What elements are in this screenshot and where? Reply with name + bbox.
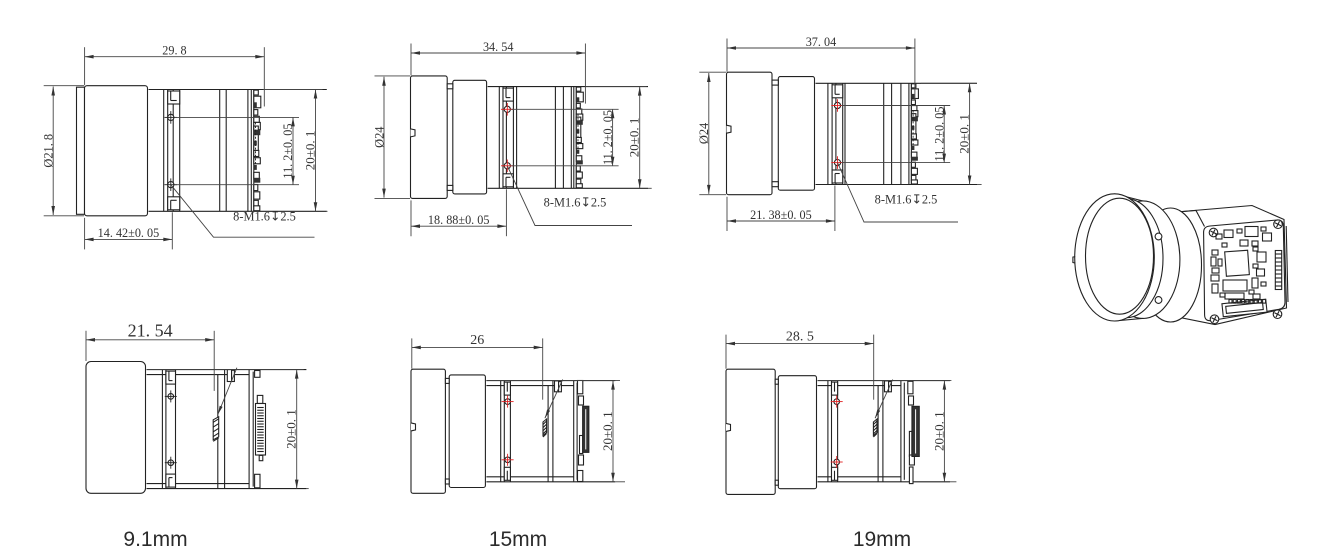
svg-text:15mm: 15mm <box>489 528 547 550</box>
svg-text:29. 8: 29. 8 <box>162 44 186 58</box>
svg-text:11. 2±0. 05: 11. 2±0. 05 <box>601 110 615 165</box>
svg-text:8-M1.6↧2.5: 8-M1.6↧2.5 <box>233 210 296 224</box>
svg-text:20±0. 1: 20±0. 1 <box>627 118 642 158</box>
svg-text:20±0. 1: 20±0. 1 <box>600 411 615 451</box>
svg-text:37. 04: 37. 04 <box>806 35 836 49</box>
svg-text:21. 54: 21. 54 <box>128 321 173 341</box>
svg-text:20±0. 1: 20±0. 1 <box>931 411 946 451</box>
svg-text:11. 2±0. 05: 11. 2±0. 05 <box>281 124 295 179</box>
svg-text:26: 26 <box>470 333 484 348</box>
svg-text:14. 42±0. 05: 14. 42±0. 05 <box>98 226 160 240</box>
svg-text:Ø24: Ø24 <box>372 126 386 147</box>
svg-text:Ø21. 8: Ø21. 8 <box>42 134 56 168</box>
svg-text:19mm: 19mm <box>853 528 911 550</box>
svg-text:20±0. 1: 20±0. 1 <box>284 409 299 449</box>
svg-text:8-M1.6↧2.5: 8-M1.6↧2.5 <box>544 196 607 210</box>
svg-text:8-M1.6↧2.5: 8-M1.6↧2.5 <box>875 193 938 207</box>
svg-text:34. 54: 34. 54 <box>483 40 513 54</box>
svg-text:18. 88±0. 05: 18. 88±0. 05 <box>428 213 490 227</box>
svg-text:11. 2±0. 05: 11. 2±0. 05 <box>932 107 946 162</box>
svg-text:9.1mm: 9.1mm <box>123 528 187 550</box>
svg-text:21. 38±0. 05: 21. 38±0. 05 <box>750 208 812 222</box>
svg-text:28. 5: 28. 5 <box>786 329 814 344</box>
svg-text:Ø24: Ø24 <box>697 123 711 144</box>
svg-text:20±0. 1: 20±0. 1 <box>957 114 972 154</box>
svg-text:20±0. 1: 20±0. 1 <box>303 131 318 171</box>
